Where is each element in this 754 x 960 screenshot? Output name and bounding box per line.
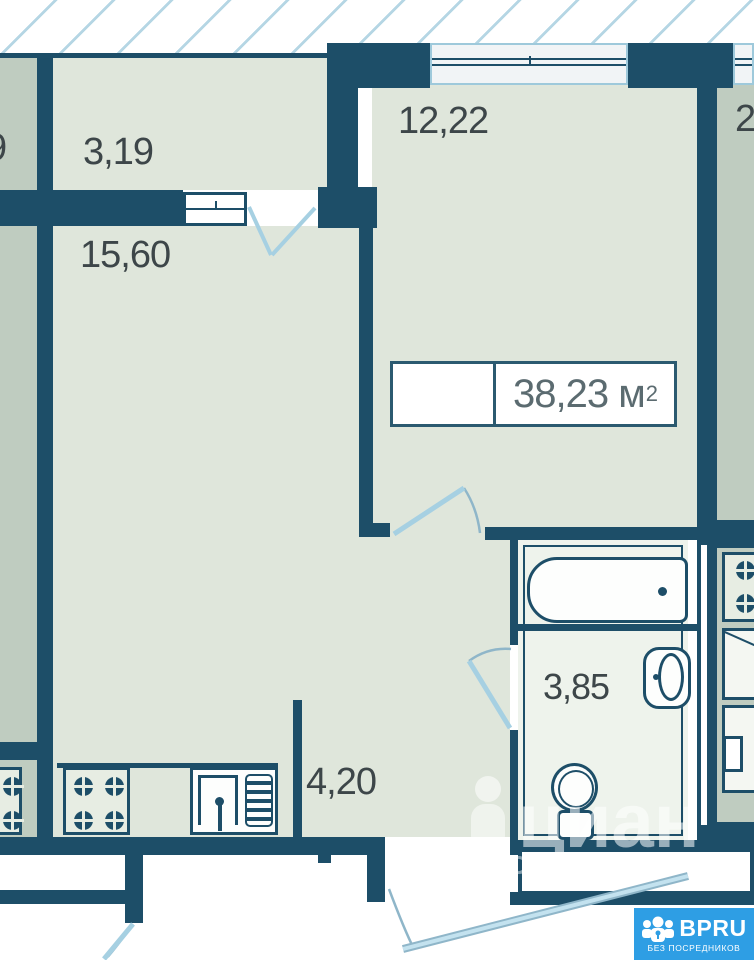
- bpru-people-icon: [641, 916, 675, 942]
- room-label-hall-top: 3,19: [83, 131, 153, 174]
- area-box-empty-cell: [393, 364, 496, 424]
- wall-segment: [359, 523, 390, 537]
- window-icon: [430, 43, 628, 85]
- room-label-kitchen-living: 15,60: [80, 234, 170, 277]
- wall-segment: [697, 85, 717, 860]
- room-bedroom-floor: [372, 85, 697, 527]
- neighbor-right-partial-label: 2: [735, 98, 754, 141]
- bpru-logo-text: BPRU: [679, 915, 746, 942]
- stove-icon: [63, 767, 130, 835]
- floorplan-canvas: 9 2: [0, 0, 754, 960]
- room-label-bathroom: 3,85: [543, 666, 609, 708]
- toilet-icon: [643, 647, 691, 709]
- neighbor-stove-icon: [722, 552, 754, 622]
- wall-segment: [125, 855, 143, 923]
- neighbor-appliance-icon: [722, 628, 754, 700]
- wall-segment: [318, 187, 377, 228]
- wall-segment: [0, 190, 183, 226]
- wall-segment: [327, 43, 358, 190]
- window-icon: [733, 43, 754, 85]
- watermark-letter: D: [510, 850, 529, 881]
- wall-segment: [510, 540, 518, 645]
- partition-wall: [293, 700, 302, 837]
- wall-segment: [318, 851, 331, 863]
- neighbor-counter: [0, 742, 50, 760]
- neighbor-stove-icon: [0, 767, 22, 835]
- neighbor-left-room-floor: 9: [0, 57, 37, 190]
- total-area-box: 38,23 м2: [390, 361, 677, 427]
- kitchen-sink-icon: [190, 767, 278, 835]
- bathtub-icon: [527, 557, 688, 623]
- wall-segment: [510, 892, 754, 905]
- wall-gap: [701, 545, 707, 825]
- wall-segment: [628, 43, 733, 88]
- watermark-text: циан: [518, 778, 700, 865]
- room-label-bedroom: 12,22: [398, 100, 488, 143]
- wall-segment: [485, 527, 717, 540]
- wall-segment: [510, 730, 518, 850]
- bathtub-niche-line: [510, 624, 697, 631]
- wall-segment: [359, 227, 373, 527]
- wall-segment: [367, 837, 385, 902]
- wall-segment: [717, 520, 754, 548]
- bpru-tagline: БЕЗ ПОСРЕДНИКОВ: [648, 943, 741, 953]
- person-pin-icon: [471, 804, 505, 850]
- wall-segment: [37, 57, 53, 837]
- neighbor-appliance-icon: [722, 705, 754, 793]
- hall-door-icon: [183, 192, 247, 226]
- neighbor-right-strip-floor: 2: [717, 85, 754, 855]
- bpru-badge: BPRU БЕЗ ПОСРЕДНИКОВ: [634, 908, 754, 960]
- neighbor-left-partial-label: 9: [0, 127, 6, 170]
- total-area-value: 38,23 м2: [496, 364, 674, 424]
- wall-segment: [0, 890, 125, 904]
- room-label-corridor: 4,20: [306, 761, 376, 804]
- person-pin-icon: [475, 776, 501, 802]
